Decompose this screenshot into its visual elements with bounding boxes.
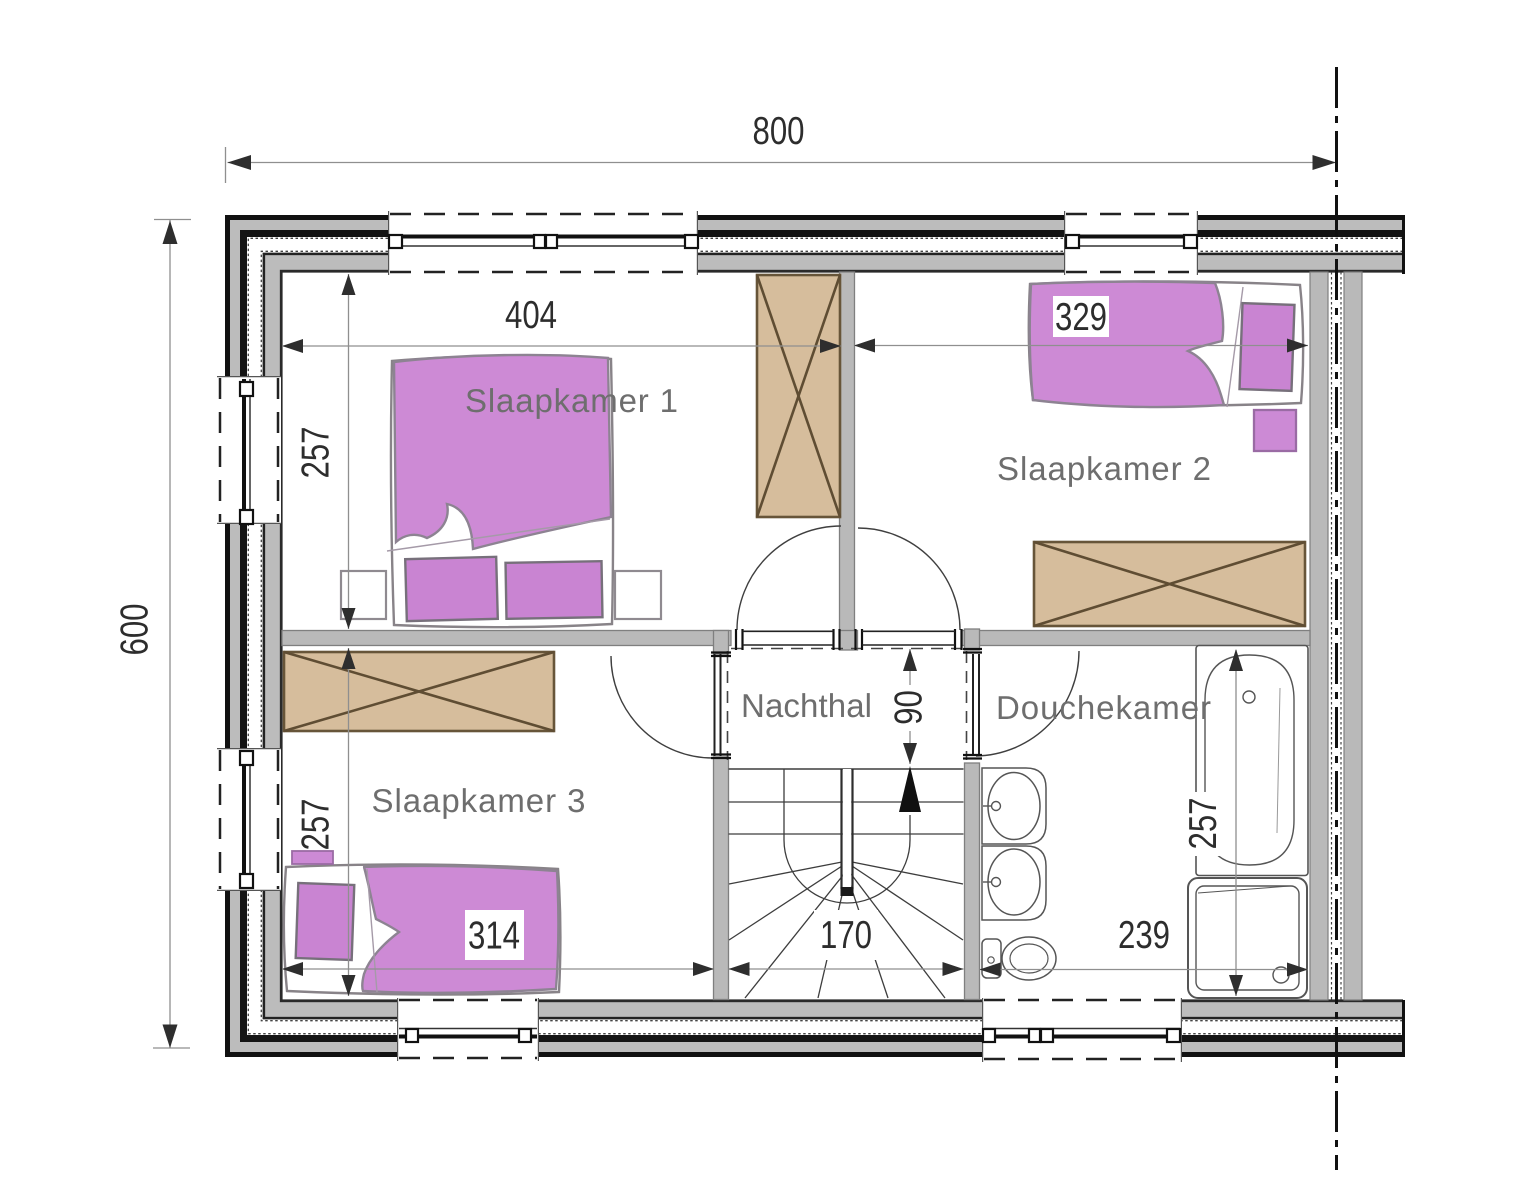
svg-text:Nachthal: Nachthal: [741, 687, 872, 724]
svg-text:257: 257: [295, 798, 338, 850]
svg-text:314: 314: [468, 915, 520, 958]
svg-text:257: 257: [295, 426, 338, 478]
svg-text:800: 800: [752, 110, 804, 153]
svg-text:Slaapkamer 2: Slaapkamer 2: [997, 450, 1211, 487]
svg-text:257: 257: [1182, 797, 1225, 849]
svg-text:170: 170: [820, 914, 872, 957]
svg-text:Slaapkamer 1: Slaapkamer 1: [465, 382, 678, 419]
svg-text:90: 90: [888, 690, 931, 725]
svg-text:Slaapkamer 3: Slaapkamer 3: [372, 782, 586, 819]
svg-text:Douchekamer: Douchekamer: [996, 689, 1211, 726]
svg-text:329: 329: [1055, 296, 1107, 339]
svg-text:600: 600: [114, 603, 157, 655]
svg-text:404: 404: [505, 294, 557, 337]
svg-text:239: 239: [1118, 914, 1170, 957]
